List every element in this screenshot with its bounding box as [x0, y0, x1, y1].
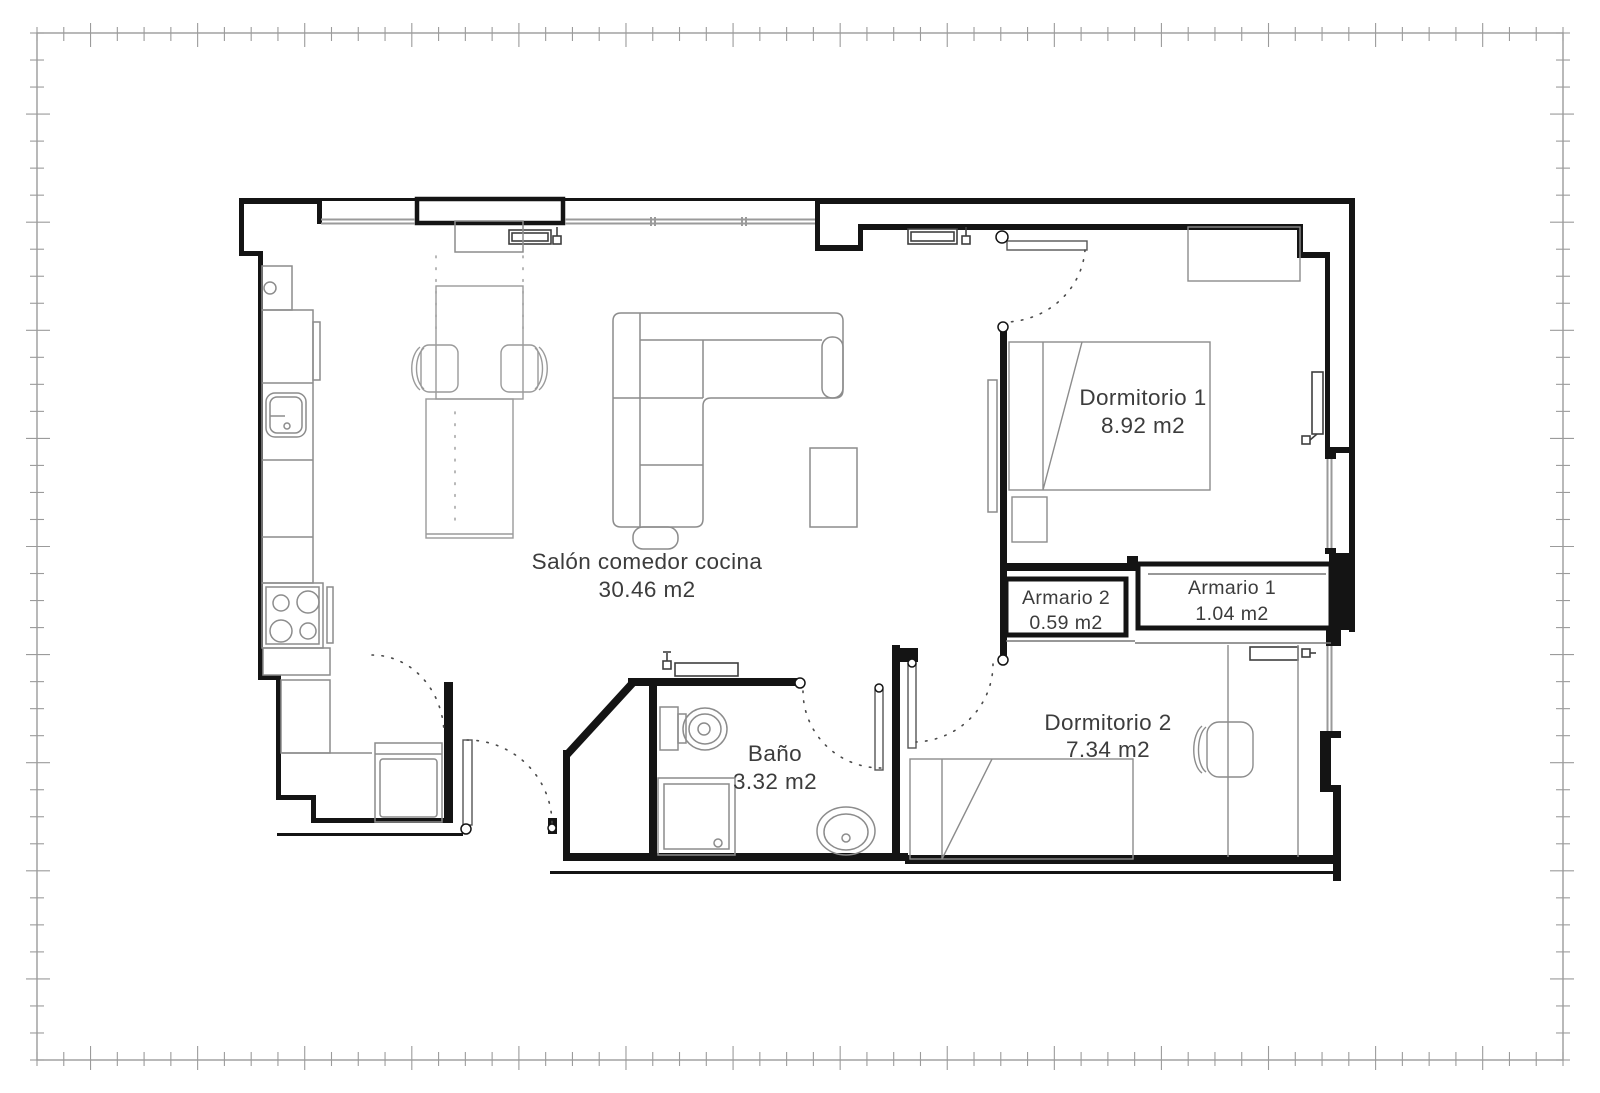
dorm1-nightstand [1012, 497, 1047, 542]
label-salon-name: Salón comedor cocina [532, 549, 763, 574]
dorm1-door-leaf [1007, 241, 1087, 250]
wall-step-h [276, 795, 316, 800]
wall-left-upper [239, 198, 244, 256]
wall-over-window2 [565, 198, 818, 201]
label-armario2-name: Armario 2 [1022, 587, 1110, 609]
label-dorm2-area: 7.34 m2 [1066, 737, 1150, 762]
door-swing-arcs [372, 250, 1085, 824]
entry-jamb-cap [548, 824, 556, 832]
wall-step-b [858, 224, 863, 251]
wall-step-f [1320, 785, 1341, 792]
toilet [660, 707, 727, 750]
label-armario1-area: 1.04 m2 [1195, 603, 1268, 625]
label-dorm2-name: Dormitorio 2 [1044, 710, 1171, 735]
radiator-bath [663, 652, 738, 676]
shower [658, 778, 735, 855]
wall-chunk-right [1320, 738, 1331, 790]
kitchen-island [426, 399, 513, 538]
wall-vestibule-left [563, 750, 570, 860]
window2-right-jamb [815, 198, 820, 251]
floorplan-drawing: Salón comedor cocina 30.46 m2 Dormitorio… [0, 0, 1600, 1093]
curtain-dashed-lines [436, 256, 523, 338]
window-top-1 [321, 220, 415, 224]
bath-jamb-cap [795, 678, 805, 688]
dorm2-bed-linen-lines [942, 759, 992, 859]
kitchen-boiler [262, 266, 292, 310]
partition-top-cap [998, 322, 1008, 332]
dining-chair-right [501, 345, 547, 392]
dorm1-wardrobe [1188, 227, 1300, 281]
exterior-line-bottom [550, 871, 1341, 874]
window-mullions [651, 217, 746, 226]
label-dorm1-name: Dormitorio 1 [1079, 385, 1206, 410]
doors [372, 231, 1087, 834]
door-leaves [463, 241, 1087, 825]
counter-lower-a [263, 648, 330, 675]
wall-right-lower [1333, 792, 1341, 881]
radiator-dorm1-right [1302, 372, 1323, 444]
dorm1-door-arc [1008, 250, 1085, 322]
label-armario1-name: Armario 1 [1188, 577, 1276, 599]
sofa-cushion-lines [613, 313, 822, 527]
dining-chair-left [412, 345, 458, 392]
bath-door-arc [803, 691, 881, 768]
wall-dorm1-right-inner [1325, 258, 1330, 447]
coffee-table [810, 448, 857, 527]
dining-table [436, 286, 523, 399]
kitchen [262, 221, 523, 822]
window-pier [417, 199, 563, 223]
kitchen-door-arc [372, 655, 444, 735]
oven-handle [327, 587, 333, 643]
bath-door-leaf [875, 690, 883, 770]
wall-step-d [1297, 252, 1330, 258]
dorm1-hinge-cap [996, 231, 1008, 243]
dorm2-desk [1228, 645, 1298, 857]
label-bano-area: 3.32 m2 [733, 769, 817, 794]
dorm1-window-jamb-top [1325, 453, 1336, 459]
window-top-2 [565, 220, 815, 224]
radiator-salon [509, 227, 561, 244]
label-salon-area: 30.46 m2 [598, 577, 695, 602]
door-hinge-caps [461, 231, 1008, 834]
dorm2-door-arc [916, 664, 993, 742]
wall-bath-dorm2 [892, 645, 900, 857]
entry-door-leaf [463, 740, 472, 825]
label-bano-name: Baño [748, 741, 802, 766]
dorm2-bed [910, 759, 1133, 859]
dorm2-window-jamb-bottom [1320, 731, 1341, 738]
floorplan-page: Salón comedor cocina 30.46 m2 Dormitorio… [0, 0, 1600, 1093]
washing-machine [375, 743, 442, 822]
basin [817, 807, 875, 855]
boiler-knob [264, 282, 276, 294]
dorm2-chair [1194, 722, 1253, 777]
exterior-line-entry [277, 833, 463, 836]
entry-door-arc [467, 740, 552, 824]
label-armario2-area: 0.59 m2 [1029, 612, 1102, 634]
dorm2-hinge-cap [908, 659, 916, 667]
kitchen-stove [262, 583, 333, 648]
sideboard [988, 380, 997, 512]
partition-bottom-cap [998, 655, 1008, 665]
dorm1-bed-linen-lines [1043, 342, 1082, 490]
wall-top-left [240, 198, 322, 204]
bath-hinge-cap [875, 684, 883, 692]
living-area [613, 313, 997, 549]
sofa-outline [613, 313, 843, 527]
entry-hinge-cap [461, 824, 471, 834]
label-dorm1-area: 8.92 m2 [1101, 413, 1185, 438]
wall-entry-stub [444, 682, 453, 823]
dining-area [412, 256, 548, 538]
counter-door [313, 322, 320, 380]
kitchen-counter [262, 310, 313, 583]
wall-step-e [1325, 447, 1355, 453]
wall-dorm1-bottom [1007, 563, 1135, 571]
kitchen-sink [266, 393, 306, 437]
windows [321, 217, 1332, 731]
wall-top-right-outer [815, 198, 1355, 204]
wall-bath-left-inner [649, 686, 657, 858]
wall-step-a [815, 245, 863, 251]
wall-chamfer [563, 679, 637, 757]
sofa-armrest-bottom [633, 527, 678, 549]
radiator-dorm2 [1250, 647, 1316, 660]
sofa-armrest-right [822, 337, 843, 398]
wall-bath-top [628, 678, 802, 686]
window-dorm2-right [1328, 646, 1332, 731]
window-dorm1-right [1328, 459, 1332, 548]
wall-over-window1 [321, 198, 416, 201]
counter-lower-b [281, 680, 330, 753]
dorm2-door-leaf [908, 664, 916, 748]
